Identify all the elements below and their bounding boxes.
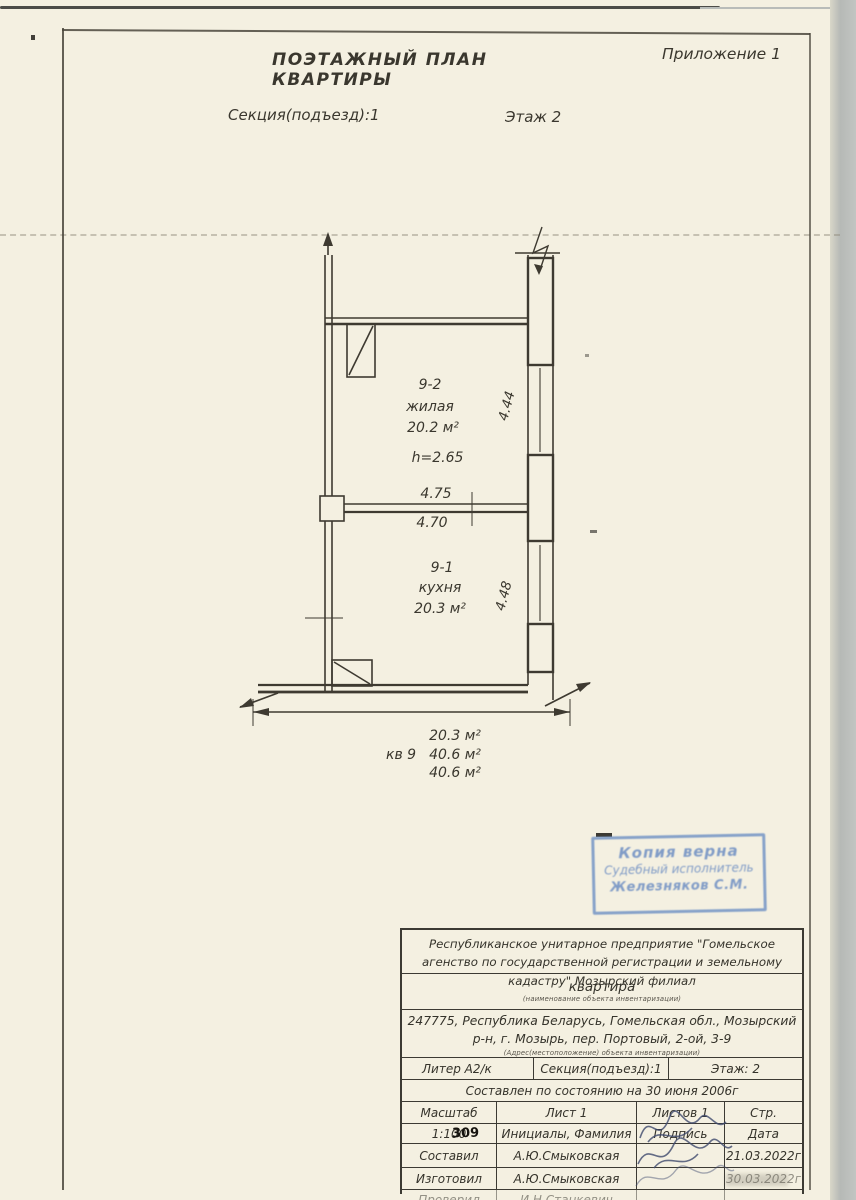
- role-composed: Составил: [402, 1144, 497, 1167]
- composed-by-row: Составил А.Ю.Смыковская 21.03.2022г: [402, 1144, 802, 1168]
- dim-partition-top: 4.75: [406, 486, 466, 502]
- signature-checked: [637, 1190, 725, 1200]
- page-frame-right: [809, 33, 811, 1190]
- floor-cell: Этаж: 2: [669, 1058, 802, 1079]
- page-frame-left: [62, 28, 64, 1190]
- column-header-row: Масштаб Лист 1 Листов 1 Стр.: [402, 1102, 802, 1124]
- stamp-line1: Копия верна: [594, 841, 762, 863]
- initials-header: Инициалы, Фамилия: [497, 1124, 637, 1143]
- faded-date-smudge: [726, 1174, 788, 1186]
- room-top-height: h=2.65: [400, 450, 475, 466]
- name-checked: И.Н.Станкевич: [497, 1190, 637, 1200]
- scale-header: Масштаб: [402, 1102, 497, 1123]
- room-top-area: 20.2 м²: [393, 420, 473, 436]
- object-type: квартира: [402, 974, 802, 995]
- signature-composed: [637, 1144, 725, 1167]
- header-floor-label: Этаж 2: [505, 108, 561, 126]
- total-area: 40.6 м²: [420, 765, 490, 781]
- address-text: 247775, Республика Беларусь, Гомельская …: [402, 1013, 802, 1049]
- object-type-cell: квартира (наименование объекта инвентари…: [402, 974, 802, 1010]
- total-kitchen-area: 20.3 м²: [420, 728, 490, 744]
- room-top-number: 9-2: [400, 377, 460, 393]
- dim-partition-bottom: 4.70: [402, 515, 462, 531]
- section-cell: Секция(подъезд):1: [534, 1058, 669, 1079]
- signature-header: Подпись: [637, 1124, 725, 1143]
- date-checked: [725, 1190, 802, 1200]
- name-composed: А.Ю.Смыковская: [497, 1144, 637, 1167]
- scanned-floor-plan-page: ПОЭТАЖНЫЙ ПЛАН КВАРТИРЫ Приложение 1 Сек…: [0, 0, 856, 1200]
- apartment-area: 40.6 м²: [420, 747, 490, 763]
- scale-value: 1:100: [402, 1124, 497, 1143]
- liter-row: Литер А2/к Секция(подъезд):1 Этаж: 2: [402, 1058, 802, 1080]
- stamp-line3: Железняков С.М.: [595, 877, 763, 896]
- status-row: Составлен по состоянию на 30 июня 2006г: [402, 1080, 802, 1102]
- name-made: А.Ю.Смыковская: [497, 1168, 637, 1189]
- date-composed: 21.03.2022г: [725, 1144, 802, 1167]
- organization-cell: Республиканское унитарное предприятие "Г…: [402, 930, 802, 974]
- sheets-header: Листов 1: [637, 1102, 725, 1123]
- sheet-header: Лист 1: [497, 1102, 637, 1123]
- role-made: Изготовил: [402, 1168, 497, 1189]
- page-title: ПОЭТАЖНЫЙ ПЛАН КВАРТИРЫ: [272, 50, 592, 90]
- room-bottom-number: 9-1: [412, 560, 472, 576]
- address-cell: 247775, Республика Беларусь, Гомельская …: [402, 1010, 802, 1058]
- floor-plan-drawing: [230, 225, 630, 735]
- inventory-info-table: Республиканское унитарное предприятие "Г…: [400, 928, 804, 1194]
- scan-right-edge: [830, 0, 856, 1200]
- signature-made: [637, 1168, 725, 1189]
- copy-certified-stamp: Копия верна Судебный исполнитель Железня…: [591, 833, 767, 915]
- ink-speck: [31, 35, 35, 40]
- apartment-number-label: кв 9: [386, 747, 416, 763]
- room-top-name: жилая: [395, 399, 465, 415]
- scan-top-edge: [0, 6, 720, 9]
- room-bottom-name: кухня: [405, 580, 475, 596]
- annex-label: Приложение 1: [662, 45, 781, 63]
- object-type-caption: (наименование объекта инвентаризации): [402, 995, 802, 1003]
- stamp-line2: Судебный исполнитель: [595, 860, 763, 878]
- overprint-number: 309: [452, 1126, 479, 1141]
- liter-cell: Литер А2/к: [402, 1058, 534, 1079]
- date-header: Дата: [725, 1124, 802, 1143]
- header-section-label: Секция(подъезд):1: [228, 106, 380, 124]
- role-checked: Проверил: [402, 1190, 497, 1200]
- page-header: Стр.: [725, 1102, 802, 1123]
- page-frame-top: [62, 29, 810, 35]
- checked-by-row: Проверил И.Н.Станкевич: [402, 1190, 802, 1200]
- room-bottom-area: 20.3 м²: [400, 601, 480, 617]
